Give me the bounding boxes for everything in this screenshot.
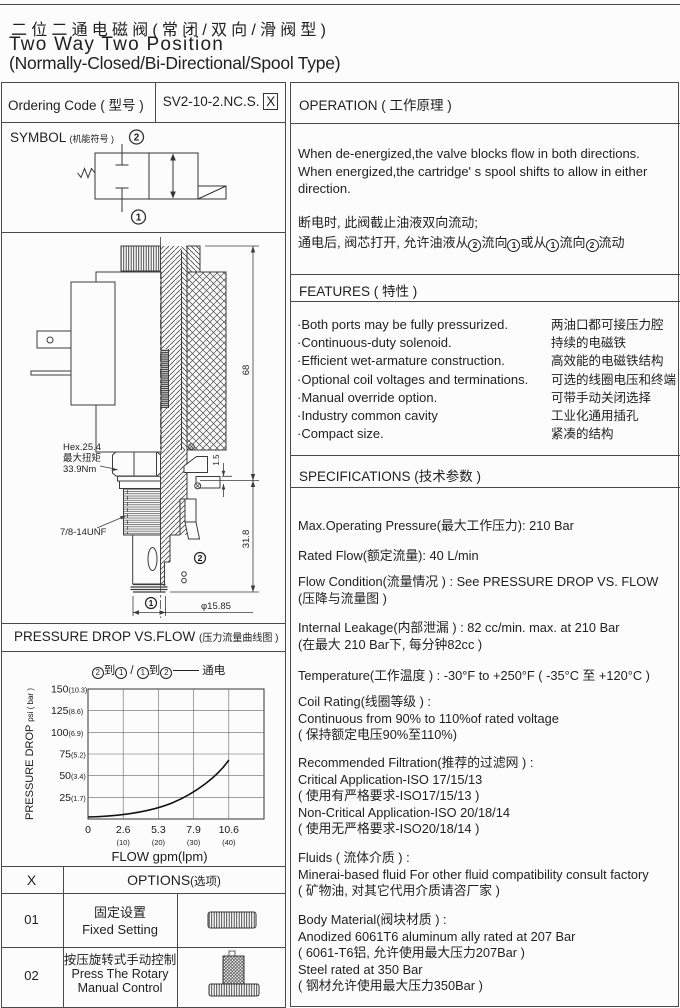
svg-text:(1.7): (1.7) (71, 794, 86, 803)
svg-text:Hex.25.4: Hex.25.4 (63, 442, 101, 453)
svg-text:(10.3): (10.3) (69, 686, 88, 695)
svg-text:2: 2 (198, 553, 203, 563)
svg-text:50: 50 (59, 770, 71, 782)
svg-text:1: 1 (149, 598, 154, 608)
svg-text:0: 0 (85, 824, 91, 836)
svg-text:1.5: 1.5 (212, 454, 221, 466)
svg-text:1: 1 (136, 213, 142, 224)
svg-text:(8.6): (8.6) (69, 707, 84, 716)
svg-text:5.3: 5.3 (151, 824, 166, 836)
svg-text:2.6: 2.6 (116, 824, 131, 836)
svg-text:2: 2 (134, 133, 140, 144)
svg-text:(30): (30) (187, 838, 201, 847)
svg-text:68: 68 (241, 365, 252, 376)
svg-text:31.8: 31.8 (241, 530, 252, 549)
svg-text:PRESSURE DROP psi ( bar ): PRESSURE DROP psi ( bar ) (24, 688, 36, 820)
svg-text:(10): (10) (117, 838, 131, 847)
svg-text:125: 125 (51, 705, 69, 717)
svg-text:(5.2): (5.2) (71, 751, 86, 760)
svg-text:33.9Nm: 33.9Nm (63, 464, 96, 475)
svg-text:φ15.85: φ15.85 (201, 601, 231, 612)
svg-text:(6.9): (6.9) (69, 729, 84, 738)
svg-text:7/8-14UNF: 7/8-14UNF (60, 527, 107, 538)
svg-text:(40): (40) (222, 838, 236, 847)
svg-text:75: 75 (59, 749, 71, 761)
svg-text:FLOW gpm(lpm): FLOW gpm(lpm) (111, 849, 207, 864)
svg-text:150: 150 (51, 684, 69, 696)
svg-text:(20): (20) (152, 838, 166, 847)
svg-text:7.9: 7.9 (186, 824, 201, 836)
svg-text:(3.4): (3.4) (71, 772, 86, 781)
svg-text:10.6: 10.6 (219, 824, 240, 836)
svg-text:最大扭矩: 最大扭矩 (63, 452, 102, 464)
svg-text:25: 25 (59, 792, 71, 804)
svg-text:100: 100 (51, 727, 69, 739)
